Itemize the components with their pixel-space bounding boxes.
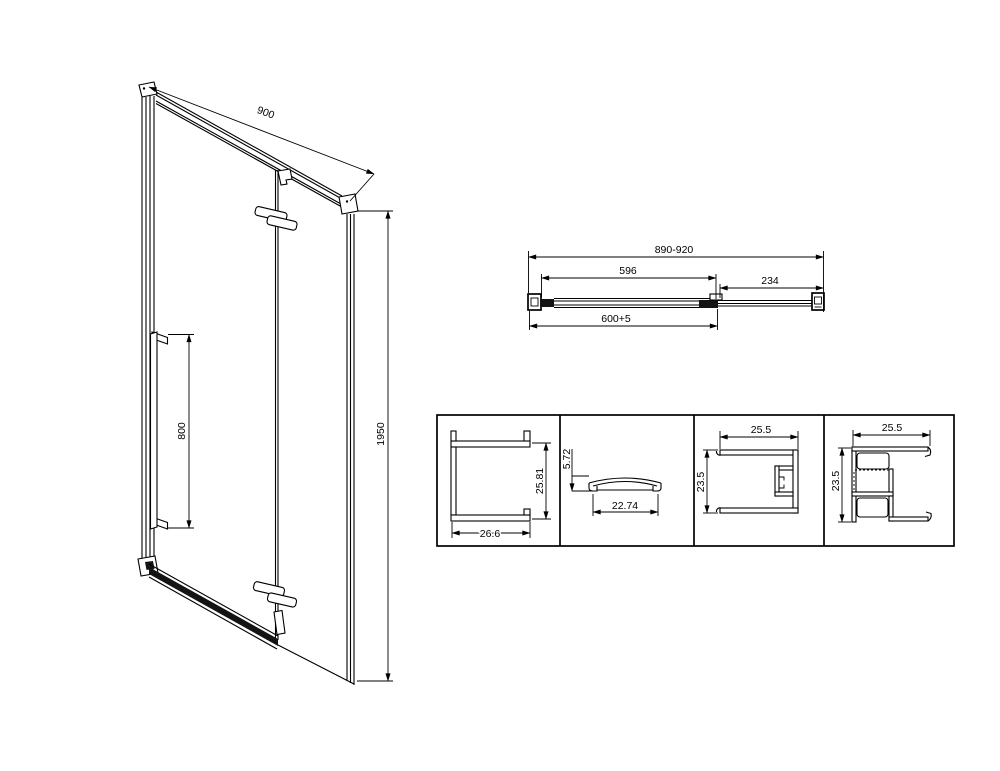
cap-screw-dot: [143, 87, 145, 89]
dim-cap-height: 5.72: [561, 449, 595, 491]
dim-wall-profile-height: 23.5: [695, 450, 718, 513]
dim-label-25-5-a: 25.5: [751, 424, 772, 436]
dim-extension-profile-width: 25.5: [853, 422, 930, 446]
bottom-rail: [149, 564, 354, 684]
dim-label-890-920: 890-920: [655, 244, 694, 256]
dim-bar-width: 600+5: [530, 309, 718, 330]
technical-drawing-page: 900 800 1950: [0, 0, 1000, 771]
top-glass-clamp: [278, 169, 292, 185]
wall-bracket-right-inner: [815, 297, 822, 304]
dim-extension-profile-height: 23.5: [830, 448, 851, 522]
wall-bracket-right: [812, 293, 824, 310]
isometric-door-view: 900 800 1950: [138, 82, 393, 685]
profile-cover-cap: 5.72 22.74: [561, 449, 661, 516]
glass-clamp-middle: [699, 300, 718, 308]
dim-door-height: 1950: [357, 211, 393, 681]
dim-label-900: 900: [255, 104, 276, 121]
door-division-edge: [276, 169, 293, 640]
support-bar-plan: [554, 299, 711, 308]
dim-label-25-81: 25.81: [534, 468, 546, 494]
side-panel-bottom-edge: [278, 645, 354, 684]
glass-clamp-left: [540, 299, 554, 307]
profile-details-box: 25.81 26.6 5.72: [437, 415, 954, 546]
dim-handle-height: 800: [168, 335, 194, 529]
dim-label-600-5: 600+5: [601, 313, 631, 325]
dim-label-25-5-b: 25.5: [882, 422, 903, 434]
dim-cap-width: 22.74: [593, 494, 658, 516]
top-plan-view: 890-920 596 234 600+5: [528, 244, 824, 330]
dim-label-234: 234: [761, 275, 779, 287]
dim-label-26-6: 26.6: [480, 528, 501, 540]
extension-bar-plan: [718, 301, 812, 307]
dim-label-5-72: 5.72: [561, 449, 573, 470]
dim-door-width: 900: [149, 87, 374, 201]
dim-label-1950: 1950: [375, 422, 387, 446]
wall-profile-right: [347, 214, 354, 685]
wall-bracket-left-inner: [531, 298, 538, 306]
wall-bracket-left: [528, 294, 541, 310]
door-handle: [151, 332, 168, 529]
dim-channel-height: 25.81: [532, 443, 551, 519]
screw-boss: [779, 477, 784, 488]
dim-label-23-5-a: 23.5: [695, 472, 707, 493]
profile-wall: 25.5 23.5: [695, 424, 798, 513]
profile-extension: 25.5 23.5: [830, 422, 931, 522]
dim-label-800: 800: [176, 422, 188, 440]
dim-wall-profile-width: 25.5: [720, 424, 798, 449]
dim-label-23-5-b: 23.5: [830, 471, 842, 492]
handle-bar: [151, 332, 158, 529]
cap-screw-dot: [346, 200, 348, 202]
dim-extension-width: 234: [720, 275, 824, 298]
dim-channel-width: 26.6: [452, 522, 530, 540]
profile-glass-channel: 25.81 26.6: [451, 431, 551, 540]
dim-label-22-74: 22.74: [612, 500, 638, 512]
top-support-bar: [139, 82, 358, 214]
dim-glass-width: 596: [542, 265, 717, 299]
bar-end-cap-right: [339, 194, 358, 214]
dim-label-596: 596: [619, 265, 637, 277]
technical-drawing-canvas: 900 800 1950: [0, 0, 1000, 771]
